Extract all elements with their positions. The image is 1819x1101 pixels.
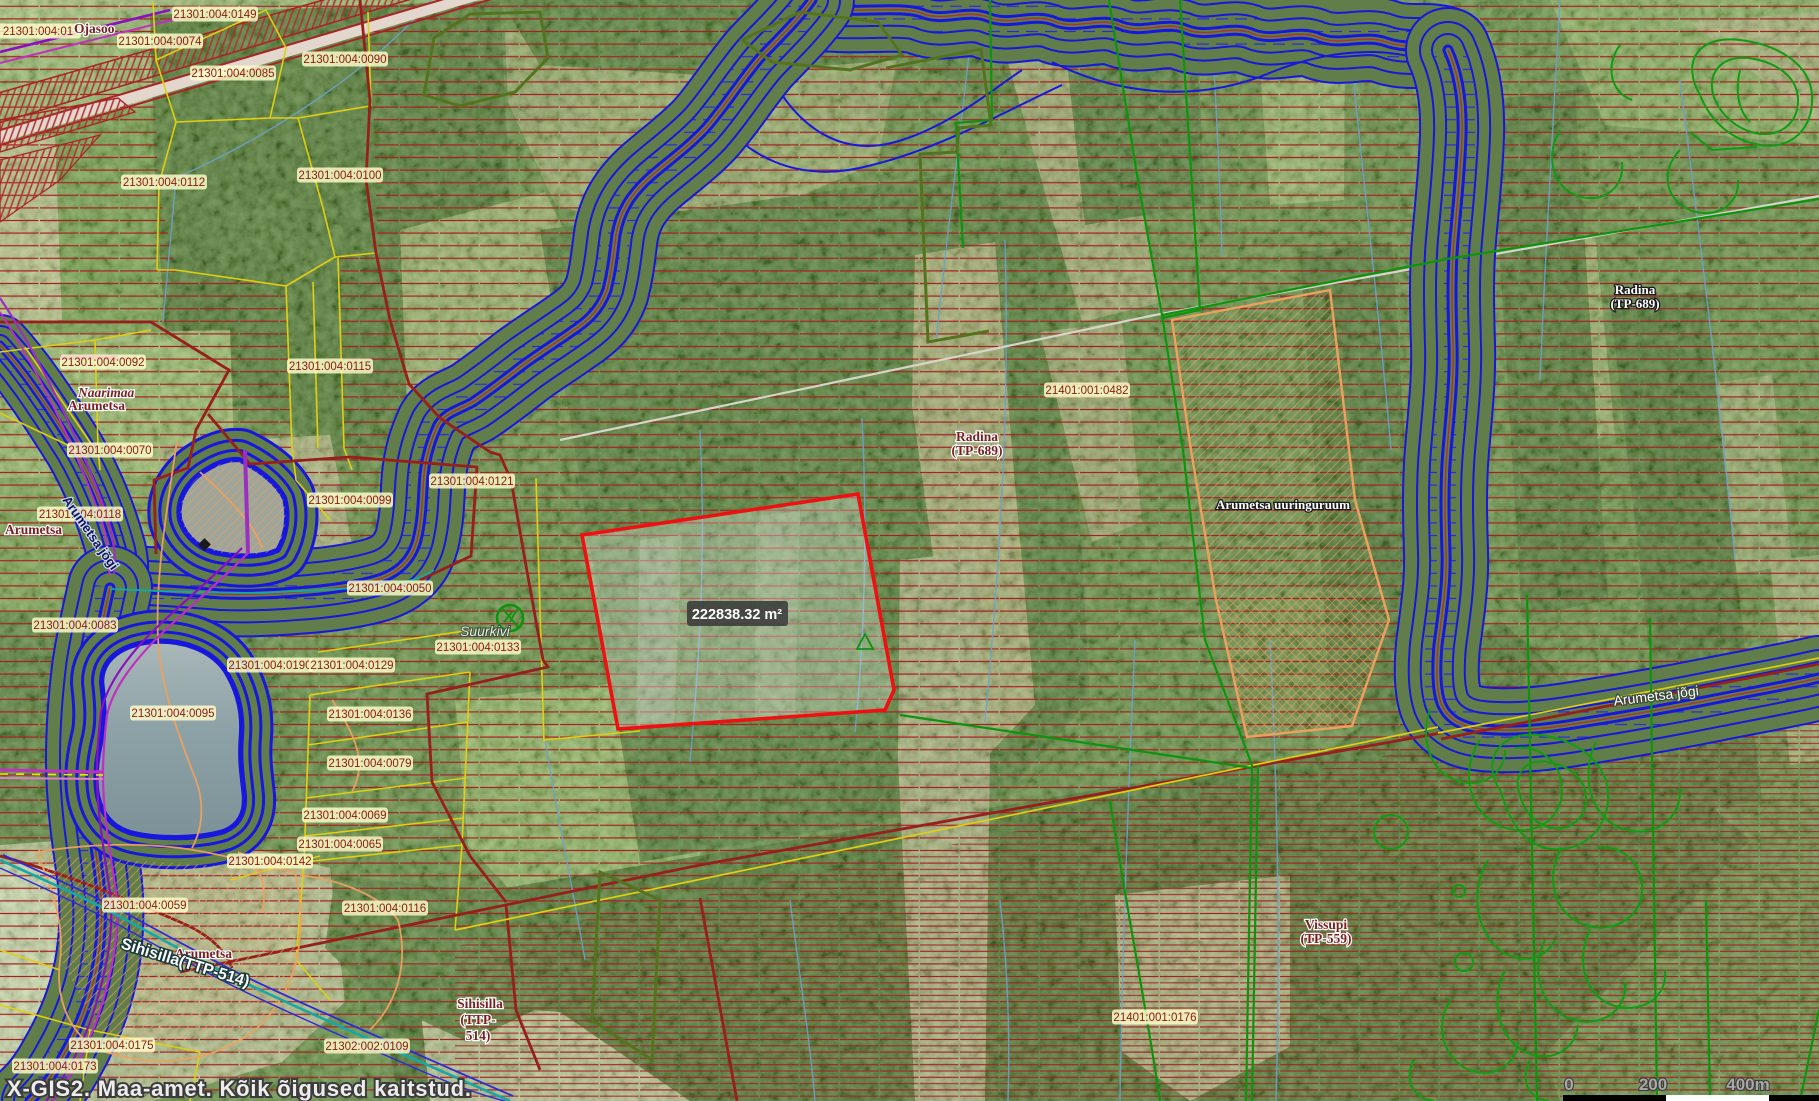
svg-text:21301:004:0069: 21301:004:0069	[303, 810, 386, 822]
svg-text:Suurkivi: Suurkivi	[460, 623, 511, 639]
svg-text:21301:004:0059: 21301:004:0059	[103, 900, 186, 912]
svg-text:X-GIS2. Maa-amet. Kõik õigused: X-GIS2. Maa-amet. Kõik õigused kaitstud.	[7, 1076, 472, 1101]
svg-text:21301:004:0149: 21301:004:0149	[173, 9, 256, 21]
svg-text:21301:004:0136: 21301:004:0136	[328, 709, 411, 721]
svg-text:222838.32 m²: 222838.32 m²	[692, 607, 782, 623]
svg-text:0: 0	[1564, 1075, 1573, 1094]
svg-text:21301:004:0050: 21301:004:0050	[348, 583, 431, 595]
svg-text:Arumetsa uuringuruum: Arumetsa uuringuruum	[1216, 497, 1350, 512]
svg-text:21301:004:0175: 21301:004:0175	[70, 1040, 153, 1052]
svg-text:21301:004:0129: 21301:004:0129	[310, 660, 393, 672]
svg-text:Radina: Radina	[1615, 282, 1656, 297]
svg-text:Radina: Radina	[956, 429, 998, 444]
svg-text:21301:004:0190: 21301:004:0190	[228, 660, 311, 672]
svg-text:200: 200	[1639, 1075, 1667, 1094]
svg-text:21301:004:0070: 21301:004:0070	[68, 445, 151, 457]
svg-text:21301:004:0095: 21301:004:0095	[131, 708, 214, 720]
svg-text:(TP-689): (TP-689)	[952, 443, 1003, 458]
svg-text:514): 514)	[466, 1028, 491, 1043]
svg-text:Arumetsa: Arumetsa	[5, 522, 62, 537]
svg-text:(TP-689): (TP-689)	[1610, 296, 1659, 311]
svg-text:21301:004:0115: 21301:004:0115	[289, 361, 371, 373]
svg-text:21301:004:0142: 21301:004:0142	[228, 856, 311, 868]
svg-text:21301:004:0083: 21301:004:0083	[33, 620, 116, 632]
svg-text:Vissupi: Vissupi	[1305, 917, 1348, 932]
svg-text:21301:004:0100: 21301:004:0100	[298, 170, 381, 182]
svg-text:21302:002:0109: 21302:002:0109	[325, 1041, 408, 1053]
svg-text:21301:004:0065: 21301:004:0065	[298, 839, 381, 851]
svg-text:21301:004:0133: 21301:004:0133	[436, 642, 519, 654]
svg-text:21301:004:0173: 21301:004:0173	[13, 1061, 96, 1073]
svg-text:21301:004:0116: 21301:004:0116	[344, 903, 426, 915]
svg-text:Ojasoo: Ojasoo	[74, 21, 115, 36]
svg-text:21301:004:0079: 21301:004:0079	[328, 758, 411, 770]
svg-text:Arumetsa: Arumetsa	[68, 398, 125, 413]
svg-text:21401:001:0482: 21401:001:0482	[1045, 385, 1128, 397]
svg-text:(TTP-: (TTP-	[460, 1012, 495, 1027]
svg-text:(TP-559): (TP-559)	[1301, 931, 1352, 946]
svg-text:21301:004:0121: 21301:004:0121	[430, 476, 513, 488]
svg-text:21401:001:0176: 21401:001:0176	[1113, 1012, 1196, 1024]
svg-text:21301:004:0112: 21301:004:0112	[123, 177, 205, 189]
svg-text:21301:004:0092: 21301:004:0092	[61, 357, 144, 369]
svg-text:21301:004:0074: 21301:004:0074	[118, 36, 202, 48]
svg-text:21301:004:0099: 21301:004:0099	[308, 495, 391, 507]
svg-text:21301:004:01: 21301:004:01	[3, 26, 73, 38]
svg-text:400m: 400m	[1726, 1075, 1769, 1094]
svg-text:Sihisilla: Sihisilla	[457, 996, 503, 1011]
svg-text:21301:004:0085: 21301:004:0085	[191, 68, 274, 80]
svg-text:21301:004:0090: 21301:004:0090	[303, 54, 386, 66]
